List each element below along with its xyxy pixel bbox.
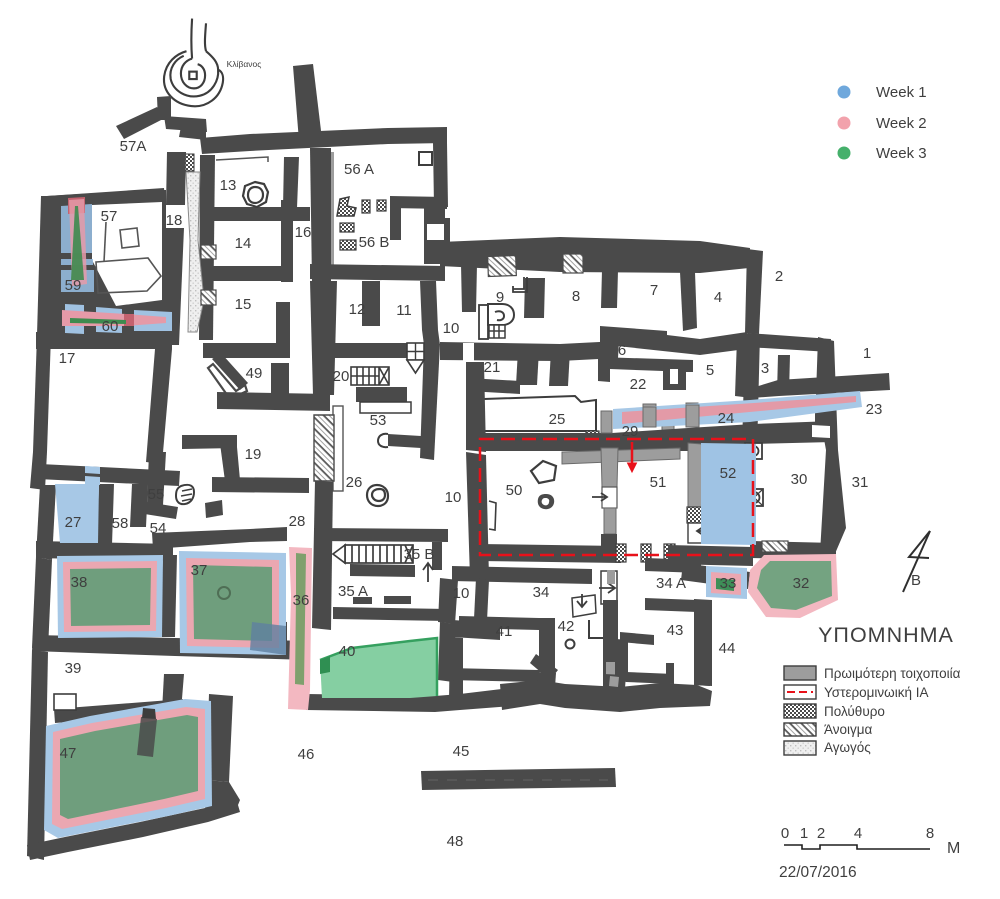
svg-text:29: 29: [622, 423, 639, 440]
svg-text:12: 12: [349, 301, 366, 318]
svg-text:13: 13: [220, 177, 237, 194]
svg-text:8: 8: [572, 288, 580, 305]
svg-text:10: 10: [445, 489, 462, 506]
svg-text:Β: Β: [911, 572, 921, 589]
svg-text:Πρωιμότερη τοιχοποιία: Πρωιμότερη τοιχοποιία: [824, 666, 961, 681]
svg-text:39: 39: [65, 660, 82, 677]
svg-text:35 A: 35 A: [338, 583, 368, 600]
svg-text:19: 19: [245, 446, 262, 463]
svg-text:Υστερομινωική ΙΑ: Υστερομινωική ΙΑ: [824, 685, 928, 700]
svg-text:26: 26: [346, 474, 363, 491]
svg-text:18: 18: [166, 212, 183, 229]
svg-text:49: 49: [246, 365, 263, 382]
svg-text:10: 10: [443, 320, 460, 337]
svg-text:58: 58: [112, 515, 129, 532]
svg-text:15: 15: [235, 296, 252, 313]
svg-text:46: 46: [298, 746, 315, 763]
svg-text:25: 25: [549, 411, 566, 428]
svg-text:10: 10: [453, 585, 470, 602]
svg-text:34 A: 34 A: [656, 575, 686, 592]
svg-text:38: 38: [71, 574, 88, 591]
svg-text:32: 32: [793, 575, 810, 592]
svg-text:Πολύθυρο: Πολύθυρο: [824, 704, 885, 719]
svg-text:56 B: 56 B: [359, 234, 390, 251]
svg-text:Week 2: Week 2: [876, 115, 927, 132]
svg-text:35 B: 35 B: [404, 546, 435, 563]
svg-text:Κλίβανος: Κλίβανος: [227, 59, 262, 69]
svg-text:41: 41: [496, 623, 513, 640]
svg-text:23: 23: [866, 401, 883, 418]
svg-text:21: 21: [484, 359, 501, 376]
svg-text:4: 4: [854, 825, 862, 842]
svg-text:Week 3: Week 3: [876, 145, 927, 162]
svg-text:3: 3: [761, 360, 769, 377]
svg-text:M: M: [947, 840, 960, 857]
svg-text:33: 33: [720, 575, 737, 592]
svg-text:57: 57: [101, 208, 118, 225]
svg-text:40: 40: [339, 643, 356, 660]
svg-text:24: 24: [718, 410, 735, 427]
svg-text:4: 4: [714, 289, 722, 306]
svg-text:34: 34: [533, 584, 550, 601]
svg-text:59: 59: [65, 277, 82, 294]
svg-text:16: 16: [295, 224, 312, 241]
svg-text:31: 31: [852, 474, 869, 491]
svg-text:50: 50: [506, 482, 523, 499]
svg-text:36: 36: [293, 592, 310, 609]
svg-text:6: 6: [618, 342, 626, 359]
svg-text:22/07/2016: 22/07/2016: [779, 864, 857, 881]
svg-text:47: 47: [60, 745, 77, 762]
svg-text:37: 37: [191, 562, 208, 579]
svg-text:52: 52: [720, 465, 737, 482]
svg-text:48: 48: [447, 833, 464, 850]
svg-text:9: 9: [496, 289, 504, 306]
svg-text:53: 53: [370, 412, 387, 429]
svg-text:17: 17: [59, 350, 76, 367]
svg-text:54: 54: [150, 520, 167, 537]
svg-text:20: 20: [333, 368, 350, 385]
svg-text:Άνοιγμα: Άνοιγμα: [824, 722, 873, 737]
svg-text:60: 60: [102, 318, 119, 335]
svg-text:11: 11: [396, 302, 412, 319]
svg-text:1: 1: [863, 345, 871, 362]
svg-text:42: 42: [558, 618, 575, 635]
svg-text:51: 51: [650, 474, 667, 491]
svg-text:43: 43: [667, 622, 684, 639]
svg-text:22: 22: [630, 376, 647, 393]
svg-text:2: 2: [817, 825, 825, 842]
svg-text:8: 8: [926, 825, 934, 842]
svg-text:55: 55: [148, 486, 165, 503]
svg-text:14: 14: [235, 235, 252, 252]
svg-text:30: 30: [791, 471, 808, 488]
svg-text:ΥΠΟΜΝΗΜΑ: ΥΠΟΜΝΗΜΑ: [818, 623, 954, 647]
svg-text:28: 28: [289, 513, 306, 530]
svg-text:5: 5: [706, 362, 714, 379]
svg-text:2: 2: [775, 268, 783, 285]
svg-text:Week 1: Week 1: [876, 84, 927, 101]
svg-text:1: 1: [800, 825, 808, 842]
svg-text:57A: 57A: [120, 138, 147, 155]
svg-text:0: 0: [781, 825, 789, 842]
svg-text:Αγωγός: Αγωγός: [824, 740, 871, 755]
svg-text:27: 27: [65, 514, 82, 531]
svg-text:44: 44: [719, 640, 736, 657]
svg-text:7: 7: [650, 282, 658, 299]
svg-text:56 A: 56 A: [344, 161, 374, 178]
svg-text:45: 45: [453, 743, 470, 760]
